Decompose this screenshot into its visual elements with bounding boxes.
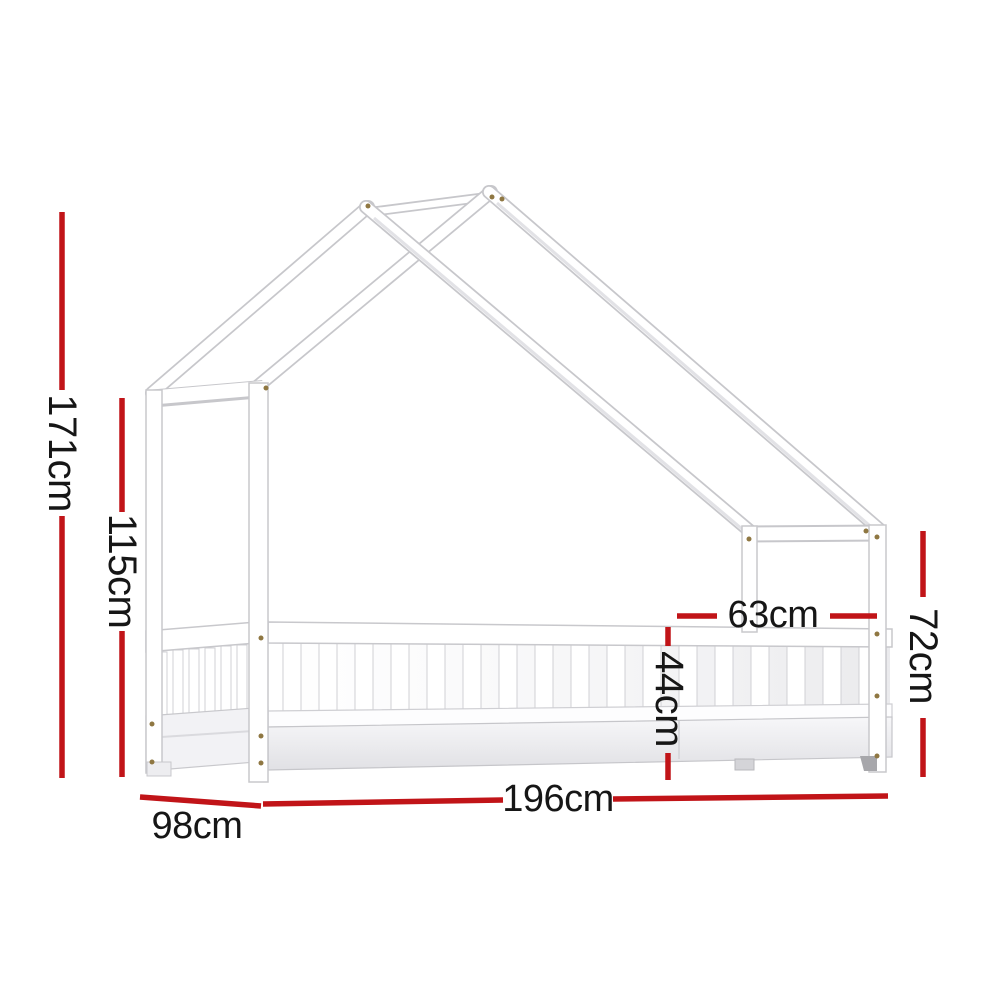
- dimension-label-bed-width: 98cm: [152, 807, 243, 845]
- right-wall-crossbar: [743, 533, 884, 534]
- front-left-post: [146, 390, 162, 773]
- product-dimension-diagram: 171cm 115cm 44cm 63cm 72cm 196cm 98cm: [0, 0, 1000, 1000]
- end-panel-slats: [157, 645, 247, 715]
- dim-bed-length-right: [613, 796, 888, 799]
- dimension-label-bed-length: 196cm: [502, 780, 614, 818]
- front-left-foot: [147, 762, 171, 776]
- left-wall-crossbar: [147, 388, 263, 399]
- back-right-post: [869, 525, 886, 772]
- side-rail-slats: [283, 641, 877, 713]
- front-rafter: [152, 207, 368, 393]
- side-base-board: [268, 717, 892, 770]
- dimension-label-rail-height: 44cm: [649, 651, 689, 747]
- right-foot: [860, 756, 877, 771]
- center-foot: [735, 759, 754, 770]
- dimension-label-foot-section-width: 63cm: [728, 596, 819, 634]
- dimension-label-foot-end-height: 72cm: [903, 608, 943, 704]
- bed-illustration: [0, 0, 1000, 1000]
- dimension-label-canopy-height: 115cm: [102, 514, 142, 629]
- back-left-post: [249, 383, 268, 782]
- dim-bed-length-left: [263, 800, 503, 804]
- dimension-label-overall-height: 171cm: [42, 394, 82, 512]
